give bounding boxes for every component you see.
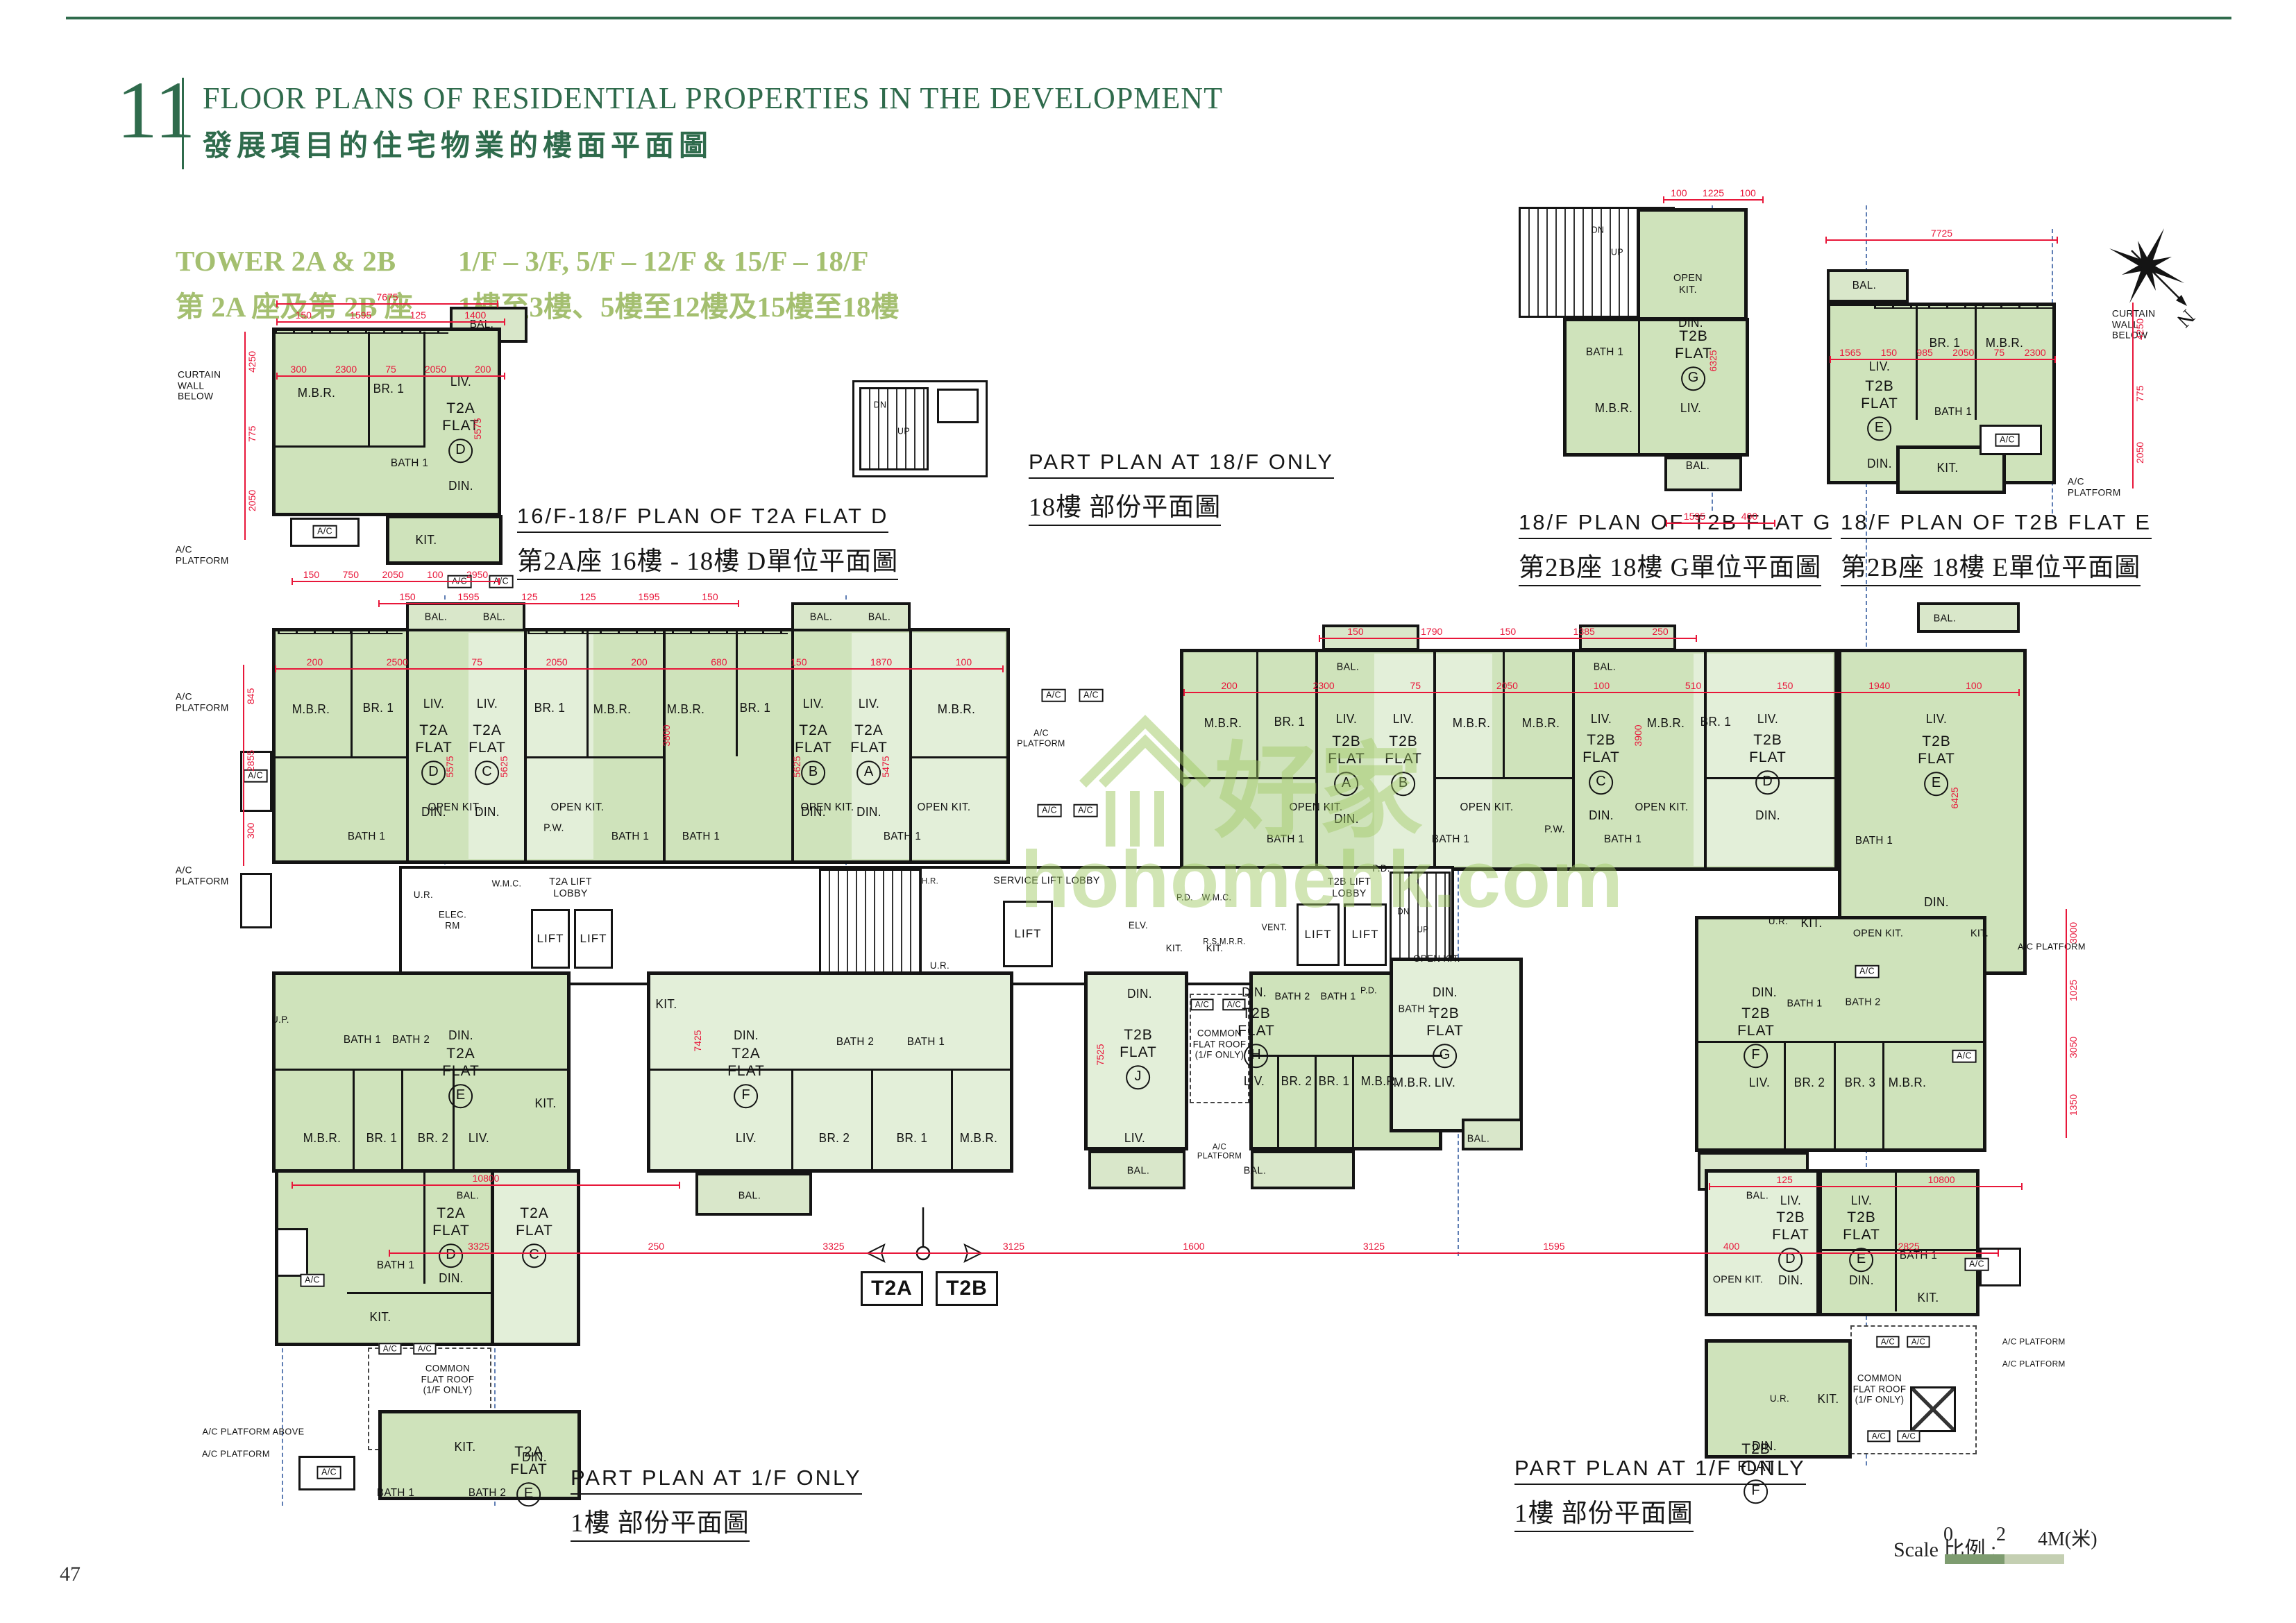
room-label: LIV.	[1244, 1074, 1265, 1088]
flat-designator: T2AFLATF	[727, 1046, 765, 1108]
flat-designator: T2BFLATF	[1737, 1441, 1775, 1504]
ac-unit-box: A/C	[1867, 1430, 1890, 1442]
room-label: LIV.	[423, 697, 444, 711]
room-label: BAL.	[1337, 662, 1359, 674]
room-label: BAL.	[1467, 1134, 1489, 1146]
room-label: COMMON FLAT ROOF (1/F ONLY)	[416, 1363, 479, 1395]
room-label: DIN.	[1849, 1273, 1874, 1287]
room-label: LIV.	[1869, 359, 1890, 373]
room-label: BR. 1	[363, 701, 394, 715]
room-label: BATH 1	[391, 457, 428, 470]
room-label: M.B.R.	[938, 702, 976, 716]
wall	[1882, 1041, 1884, 1152]
ac-unit-box: A/C	[1876, 1336, 1899, 1348]
room-label: DIN.	[1755, 808, 1780, 822]
tower-marker-t2b: T2B	[936, 1271, 998, 1306]
dimension-strip: 7725	[1825, 228, 2058, 241]
room-label: BATH 1	[682, 831, 720, 843]
room-label: U.P.	[271, 1014, 289, 1026]
room-label: KIT.	[1918, 1291, 1939, 1305]
room-label: A/C PLATFORM	[176, 544, 233, 566]
lift-label: LIFT	[580, 932, 607, 946]
flat-outline	[1563, 318, 1749, 457]
wall	[1916, 305, 1918, 420]
ac-unit-box: A/C	[413, 1343, 436, 1354]
room-label: KIT.	[370, 1310, 391, 1324]
room-label: LIV.	[1757, 712, 1778, 726]
service-lift-box: LIFT	[1003, 901, 1053, 967]
room-label: M.B.R.	[593, 702, 632, 716]
room-label: OPEN KIT.	[1635, 801, 1689, 814]
flat-designator: T2BFLATG	[1426, 1005, 1464, 1068]
window-sill	[1874, 303, 2053, 309]
room-label: BR. 1	[1700, 715, 1732, 729]
room-label: M.B.R.	[292, 702, 330, 716]
room-label: LIV.	[1393, 712, 1414, 726]
room-label: LIV.	[1749, 1076, 1770, 1089]
room-label: BATH 1	[1432, 833, 1469, 846]
room-label: M.B.R.	[1204, 716, 1242, 730]
brochure-page: 11 FLOOR PLANS OF RESIDENTIAL PROPERTIES…	[0, 0, 2296, 1623]
room-label: DN	[1397, 907, 1409, 916]
room-label: KIT.	[1937, 461, 1959, 475]
room-label: OPEN KIT.	[428, 801, 482, 814]
tower-name-en: TOWER 2A & 2B	[176, 244, 396, 278]
room-label: LIV.	[1124, 1131, 1145, 1145]
dimension-label: 5625	[791, 756, 802, 777]
room-label: LIV.	[469, 1131, 489, 1145]
wall	[647, 1069, 1013, 1071]
wall	[1975, 305, 1977, 420]
room-label: DIN.	[1678, 316, 1703, 330]
dimension-label: 3800	[661, 724, 672, 746]
caption-zh: 1樓 部份平面圖	[1514, 1492, 1694, 1532]
room-label: A/C PLATFORM	[1013, 728, 1070, 748]
room-label: OPEN KIT.	[1413, 953, 1460, 965]
room-label: BAL.	[738, 1191, 761, 1203]
wall	[791, 1069, 793, 1173]
room-label: KIT.	[1801, 916, 1823, 930]
wall	[353, 1069, 355, 1173]
room-label: A/C PLATFORM	[1189, 1143, 1249, 1162]
room-label: DIN.	[1778, 1273, 1803, 1287]
room-label: BATH 1	[884, 831, 921, 843]
lift-shaft-outline	[1910, 1386, 1956, 1432]
room-label: BR. 2	[418, 1131, 449, 1145]
ac-unit-box: A/C	[1964, 1258, 1989, 1271]
lift-box: LIFT	[1297, 903, 1340, 966]
wall	[586, 628, 589, 756]
page-title-zh: 發展項目的住宅物業的樓面平面圖	[203, 122, 713, 164]
room-label: P.D.	[1360, 986, 1377, 996]
wall	[1503, 649, 1505, 777]
caption-zh: 第2B座 18樓 G單位平面圖	[1519, 546, 1821, 586]
caption-zh: 第2A座 16樓 - 18樓 D單位平面圖	[517, 540, 898, 580]
room-label: BR. 1	[897, 1131, 928, 1145]
room-label: M.B.R.	[1889, 1076, 1927, 1089]
room-label: BATH 1	[1855, 835, 1893, 847]
room-label: KIT.	[1206, 943, 1223, 954]
room-label: KIT.	[416, 533, 437, 547]
wall	[736, 628, 738, 756]
room-label: BATH 1	[377, 1259, 414, 1272]
dimension-strip: 7675	[276, 291, 498, 305]
flat-designator: T2BFLATE	[1918, 733, 1955, 796]
room-label: DIN.	[1242, 985, 1267, 999]
room-label: KIT.	[656, 997, 677, 1011]
room-label: BR. 1	[1274, 715, 1306, 729]
flat-designator: T2AFLATC	[516, 1205, 553, 1268]
room-label: BAL.	[1746, 1191, 1769, 1203]
room-label: M.B.R.	[1647, 716, 1685, 730]
room-label: W.M.C.	[492, 879, 522, 890]
dimension-strip: 15017901501385250	[1319, 626, 1697, 639]
room-label: M.B.R.	[960, 1131, 998, 1145]
room-label: BAL.	[483, 612, 505, 624]
plan-caption-t2b-e-18f: 18/F PLAN OF T2B FLAT E 第2B座 18樓 E單位平面圖	[1841, 510, 2152, 586]
wall	[423, 1173, 425, 1284]
caption-zh: 第2B座 18樓 E單位平面圖	[1841, 546, 2141, 586]
caption-zh: 1樓 部份平面圖	[571, 1502, 750, 1542]
flat-designator: T2BFLATD	[1749, 732, 1787, 794]
room-label: DIN.	[856, 805, 881, 819]
room-label: DIN.	[1433, 985, 1458, 999]
plan-caption-part-18f: PART PLAN AT 18/F ONLY 18樓 部份平面圖	[1029, 450, 1334, 526]
balcony-outline	[1917, 602, 2020, 633]
dimension-strip: 3325250332531251600312515954002825	[389, 1241, 1999, 1254]
room-label: T2A LIFT LOBBY	[537, 876, 605, 900]
wall	[1256, 649, 1258, 777]
dimension-label: 6325	[1707, 350, 1719, 371]
ac-unit-box: A/C	[378, 1343, 401, 1354]
room-label: LIV.	[1336, 712, 1357, 726]
room-label: OPEN KIT.	[1290, 801, 1343, 814]
room-label: A/C PLATFORM	[176, 691, 234, 713]
room-label: OPEN KIT.	[1460, 801, 1514, 814]
room-label: BAL.	[1852, 280, 1876, 292]
lift-box: LIFT	[574, 909, 613, 969]
wall	[1180, 777, 1317, 779]
dimension-label: 5575	[444, 756, 455, 777]
room-label: BAL.	[810, 612, 832, 624]
room-label: P.D.	[1372, 863, 1390, 874]
room-label: BATH 2	[469, 1487, 506, 1499]
room-label: DIN.	[1924, 895, 1949, 909]
room-label: LIV.	[803, 697, 824, 711]
wall	[909, 756, 1010, 758]
room-label: A/C PLATFORM	[2068, 476, 2126, 498]
room-label: A/C PLATFORM	[2002, 1359, 2066, 1368]
ac-unit-box: A/C	[1079, 689, 1103, 702]
scale-tick: 0	[1943, 1524, 1953, 1546]
room-label: UP	[897, 427, 910, 437]
wall	[1433, 777, 1573, 779]
room-label: BR. 1	[373, 382, 405, 396]
scale-bar	[1945, 1554, 2064, 1564]
ac-unit-box: A/C	[1897, 1430, 1920, 1442]
wall	[1277, 1055, 1279, 1150]
lift-label: LIFT	[1305, 928, 1332, 942]
room-label: BATH 2	[392, 1034, 430, 1046]
wall	[423, 332, 425, 446]
room-label: M.B.R.	[1394, 1076, 1432, 1089]
room-label: BATH 1	[1934, 406, 1972, 418]
room-label: BATH 1	[907, 1036, 945, 1048]
room-label: BATH 1	[1320, 992, 1356, 1003]
ac-unit-box: A/C	[1995, 434, 2019, 447]
room-label: UP	[1611, 248, 1623, 258]
room-label: M.B.R.	[298, 386, 336, 400]
ac-platform-outline	[276, 1228, 308, 1277]
dimension-label: 5575	[472, 418, 483, 439]
dimension-label: 6425	[1949, 787, 1960, 808]
room-label: KIT.	[455, 1440, 476, 1454]
lift-label: LIFT	[537, 932, 564, 946]
room-label: BAL.	[868, 612, 890, 624]
room-label: U.R.	[930, 960, 949, 971]
room-label: BAL.	[1127, 1166, 1149, 1178]
room-label: BR. 1	[534, 701, 566, 715]
lift-box: LIFT	[1344, 903, 1387, 966]
ac-unit-box: A/C	[300, 1274, 324, 1287]
dimension-strip: 1595400	[1666, 511, 1775, 524]
room-label: T2B LIFT LOBBY	[1316, 876, 1383, 900]
dimension-strip: 12510800	[1709, 1174, 2023, 1187]
flat-designator: T2BFLATC	[1582, 732, 1620, 794]
room-label: BATH 2	[1274, 992, 1310, 1003]
room-label: OPEN KIT.	[551, 801, 605, 814]
dimension-strip: 42507752050	[2132, 303, 2146, 488]
dimension-strip: 10800	[292, 1173, 680, 1186]
dimension-strip: 20023007520501005101501940100	[1183, 680, 2020, 693]
room-label: OPEN KIT.	[1713, 1275, 1763, 1286]
dimension-strip: 42507752050	[244, 332, 258, 540]
wall	[368, 332, 370, 446]
wall	[275, 445, 425, 448]
flat-outline	[1637, 208, 1748, 321]
wall	[1834, 1041, 1836, 1152]
caption-zh: 18樓 部份平面圖	[1029, 486, 1221, 526]
dimension-strip: 15075020501002950	[292, 569, 500, 582]
room-label: A/C PLATFORM ABOVE	[203, 1427, 305, 1438]
room-label: BATH 1	[377, 1487, 414, 1499]
dimension-label: 5475	[880, 756, 891, 777]
dimension-strip: 1001225100	[1663, 187, 1764, 201]
room-label: KIT.	[1818, 1392, 1839, 1406]
room-label: LIV.	[736, 1131, 757, 1145]
room-label: LIV.	[1851, 1193, 1872, 1207]
ac-unit-box: A/C	[1855, 965, 1879, 978]
flat-designator: T2AFLATE	[442, 1046, 480, 1108]
wall	[1638, 321, 1640, 455]
scale-bar-dark	[1945, 1554, 2004, 1564]
tower-marker-t2a: T2A	[861, 1271, 923, 1306]
room-label: BAL.	[1244, 1166, 1266, 1178]
room-label: A/C PLATFORM	[202, 1450, 270, 1460]
room-label: M.B.R.	[1453, 716, 1491, 730]
room-label: BR. 1	[740, 701, 771, 715]
plan-caption-t2a-d-16-18f: 16/F-18/F PLAN OF T2A FLAT D 第2A座 16樓 - …	[517, 504, 898, 580]
dimension-strip: 15015951251400	[276, 309, 505, 323]
flat-designator: T2AFLATD	[432, 1205, 470, 1268]
room-label: LIV.	[477, 697, 498, 711]
dimension-strip: 20025007520502006801501870100	[275, 656, 1004, 670]
wall	[1784, 1041, 1786, 1152]
room-label: DIN.	[1127, 987, 1152, 1001]
wall	[401, 1069, 403, 1173]
window-sill	[527, 628, 788, 634]
ac-unit-box: A/C	[1037, 804, 1061, 817]
tower-marker-label: T2A	[871, 1277, 913, 1300]
room-label: A/C PLATFORM	[2002, 1337, 2066, 1346]
room-label: A/C PLATFORM	[176, 865, 234, 886]
header-divider	[182, 78, 184, 169]
ac-unit-box: A/C	[1907, 1336, 1930, 1348]
scale-tick: 2	[1996, 1524, 2006, 1546]
room-label: LIV.	[1926, 712, 1947, 726]
room-label: BAL.	[1934, 613, 1956, 625]
room-label: W.M.C.	[1202, 893, 1232, 903]
room-label: KIT.	[535, 1096, 557, 1110]
balcony-outline	[1251, 1150, 1355, 1189]
room-label: CURTAIN WALL BELOW	[178, 369, 242, 402]
lift-label: LIFT	[1352, 928, 1379, 942]
room-label: M.B.R.	[667, 702, 705, 716]
dimension-label: 5625	[498, 756, 509, 777]
tower-marker-label: T2B	[946, 1277, 988, 1300]
room-label: DIN.	[439, 1271, 464, 1285]
room-label: BATH 1	[344, 1034, 381, 1046]
page-title-en: FLOOR PLANS OF RESIDENTIAL PROPERTIES IN…	[203, 80, 1223, 116]
scale-bar-light	[2004, 1554, 2064, 1564]
dimension-strip: 15015951251251595150	[378, 591, 739, 604]
room-label: LIV.	[1680, 401, 1701, 415]
ac-unit-box: A/C	[312, 525, 337, 538]
kitchen-outline	[386, 515, 503, 565]
stair-icon	[859, 387, 929, 470]
flat-designator: T2BFLATG	[1675, 328, 1712, 391]
room-label: BAL.	[1686, 460, 1710, 473]
room-label: VENT.	[1262, 923, 1288, 933]
flat-designator: T2BFLATB	[1385, 733, 1422, 796]
room-label: LIV.	[1591, 712, 1612, 726]
room-label: OPEN KIT.	[1853, 928, 1903, 940]
room-label: OPEN KIT.	[918, 801, 971, 814]
room-label: BATH 1	[1267, 833, 1304, 846]
top-rule	[66, 17, 2231, 19]
wall	[1352, 1055, 1354, 1150]
stair-icon	[819, 869, 922, 983]
wall	[524, 756, 664, 758]
caption-en: 18/F PLAN OF T2B FLAT E	[1841, 510, 2152, 539]
room-label: SERVICE LIFT LOBBY	[993, 876, 1100, 887]
lift-box: LIFT	[531, 909, 570, 969]
room-label: BR. 2	[1794, 1076, 1825, 1089]
room-label: BR. 1	[366, 1131, 398, 1145]
room-label: P.D.	[1176, 893, 1193, 903]
ac-unit-box: A/C	[1041, 689, 1065, 702]
room-label: KIT.	[1166, 943, 1183, 954]
room-label: BR. 3	[1845, 1076, 1876, 1089]
room-label: M.B.R.	[1522, 716, 1560, 730]
room-label: DIN.	[448, 479, 473, 493]
flat-designator: T2BFLATA	[1328, 733, 1365, 796]
wall	[951, 1069, 953, 1173]
room-label: BAL.	[457, 1191, 479, 1203]
ac-platform-outline	[240, 873, 272, 928]
dimension-strip: 15651509852050752300	[1830, 347, 2056, 360]
tower-floors-en: 1/F – 3/F, 5/F – 12/F & 15/F – 18/F	[458, 244, 868, 278]
flat-designator: T2BFLATH	[1238, 1005, 1275, 1068]
scale-tick: 4M(米)	[2038, 1524, 2097, 1552]
room-label: LIV.	[859, 697, 879, 711]
room-label: M.B.R.	[303, 1131, 341, 1145]
room-label: M.B.R.	[1595, 401, 1633, 415]
room-label: BATH 1	[1787, 999, 1822, 1010]
dimension-strip: 3002300752050200	[276, 364, 505, 377]
plan-caption-part-1f-left: PART PLAN AT 1/F ONLY 1樓 部份平面圖	[571, 1465, 862, 1542]
room-label: U.R.	[1770, 1393, 1789, 1404]
room-label: BR. 2	[1281, 1074, 1312, 1088]
flat-designator: T2BFLATF	[1737, 1005, 1775, 1068]
dimension-label: 7525	[1095, 1044, 1106, 1065]
room-label: ELV.	[1129, 920, 1148, 931]
page-number: 47	[60, 1563, 81, 1586]
room-label: BATH 1	[348, 831, 385, 843]
ac-unit-box: A/C	[1190, 999, 1213, 1010]
caption-en: 16/F-18/F PLAN OF T2A FLAT D	[517, 504, 888, 533]
room-label: BAL.	[1594, 662, 1616, 674]
room-label: U.R.	[1769, 916, 1788, 927]
flat-designator: T2BFLATJ	[1120, 1027, 1157, 1089]
room-label: BR. 1	[1319, 1074, 1350, 1088]
flat-designator: T2AFLATE	[510, 1444, 548, 1506]
room-label: BAL.	[425, 612, 447, 624]
lift-label: LIFT	[1015, 927, 1042, 941]
room-label: P.W.	[543, 823, 564, 835]
caption-en: PART PLAN AT 18/F ONLY	[1029, 450, 1334, 479]
room-label: OPEN KIT.	[801, 801, 854, 814]
room-label: LIV.	[1435, 1076, 1455, 1089]
room-label: BATH 2	[836, 1036, 874, 1048]
room-label: LIV.	[1780, 1193, 1801, 1207]
ac-unit-box: A/C	[1073, 804, 1097, 817]
room-label: COMMON FLAT ROOF (1/F ONLY)	[1848, 1373, 1911, 1405]
room-label: DN	[1592, 226, 1605, 236]
svg-text:N: N	[2172, 305, 2200, 332]
room-label: UP	[1417, 925, 1429, 934]
room-label: BR. 2	[819, 1131, 850, 1145]
window-sill	[275, 328, 448, 334]
room-label: ELEC. RM	[433, 909, 471, 931]
flat-designator: T2BFLATE	[1861, 378, 1898, 441]
room-label: OPEN KIT.	[1666, 273, 1710, 296]
room-label: DIN.	[448, 1028, 473, 1042]
wall	[871, 1069, 873, 1173]
room-label: DIN.	[734, 1028, 759, 1042]
room-label: BATH 1	[1604, 833, 1641, 846]
room-label: U.R.	[414, 890, 433, 901]
room-label: KIT.	[1970, 928, 1989, 940]
room-label: DIN.	[1867, 457, 1892, 470]
dimension-label: 7425	[692, 1030, 703, 1051]
room-label: BATH 1	[1586, 346, 1623, 359]
room-label: DN	[874, 400, 887, 411]
lift-shaft-outline	[937, 389, 979, 423]
room-label: H.R.	[922, 876, 938, 885]
room-label: DIN.	[1752, 985, 1777, 999]
ac-unit-box: A/C	[316, 1466, 341, 1479]
